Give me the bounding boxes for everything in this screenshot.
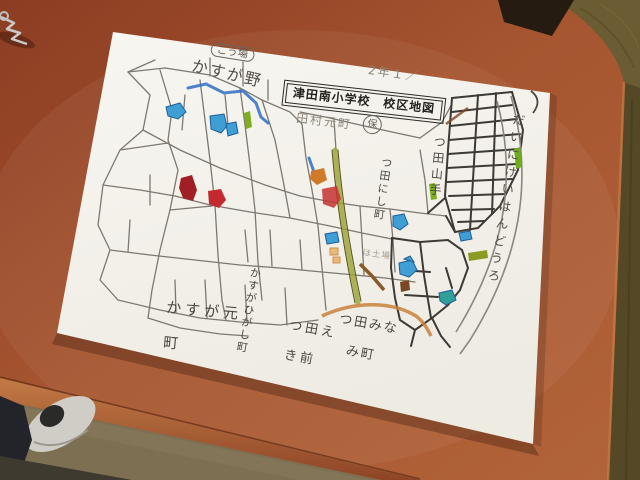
kasuga-moto-line1: かすが元 [165,299,242,324]
photo-of-hand-drawn-school-district-map: こう場 かすが野 2年１／ 津田南小学校 校区地図 田村元町 保 つ田にし町 つ… [0,0,640,480]
area-label-tsuda-minami: つ田みな み町 [321,296,403,367]
brown-marker [400,280,410,292]
scene-graphic [0,0,640,480]
kasuga-moto-line2: 町 [162,333,183,353]
tsuda-minami-line1: つ田みな [338,312,400,337]
area-label-kasuga-moto: かすが元 町 [145,281,244,358]
